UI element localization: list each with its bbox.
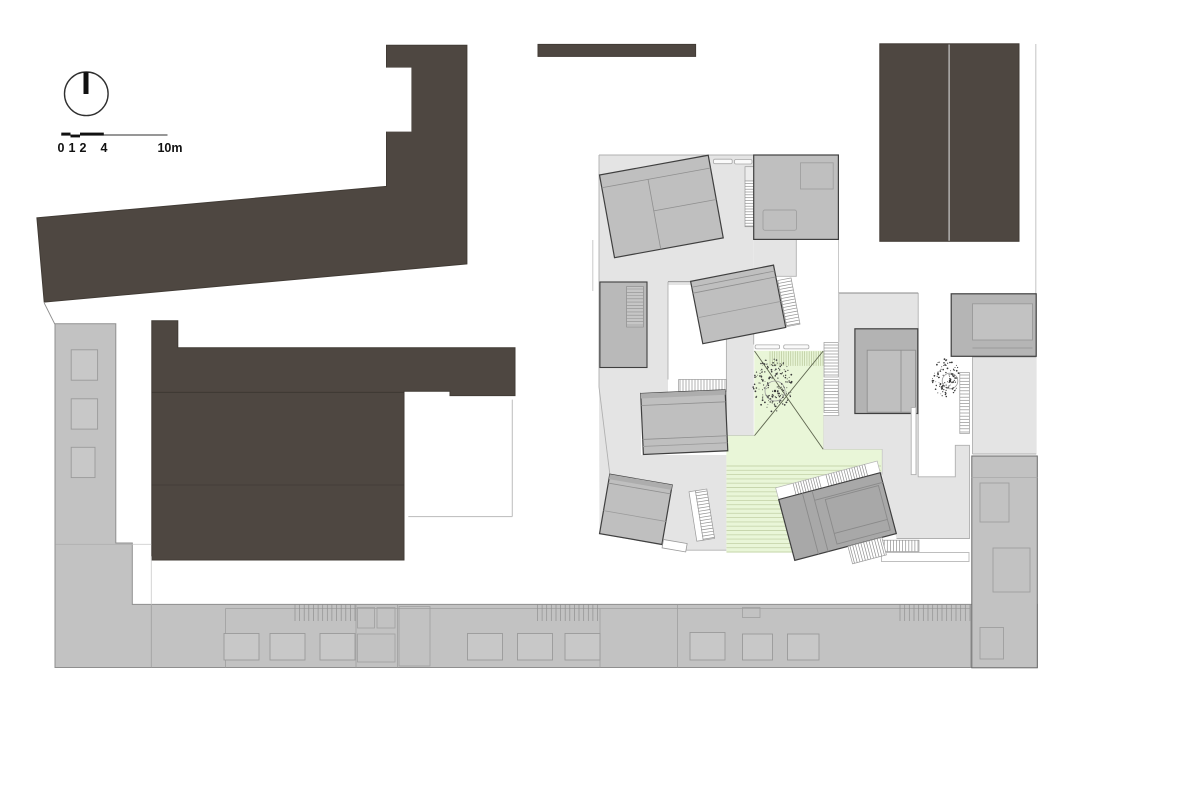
svg-text:10m: 10m: [157, 141, 182, 155]
svg-text:1: 1: [69, 141, 76, 155]
svg-text:4: 4: [101, 141, 108, 155]
svg-text:2: 2: [80, 141, 87, 155]
svg-text:0: 0: [58, 141, 65, 155]
